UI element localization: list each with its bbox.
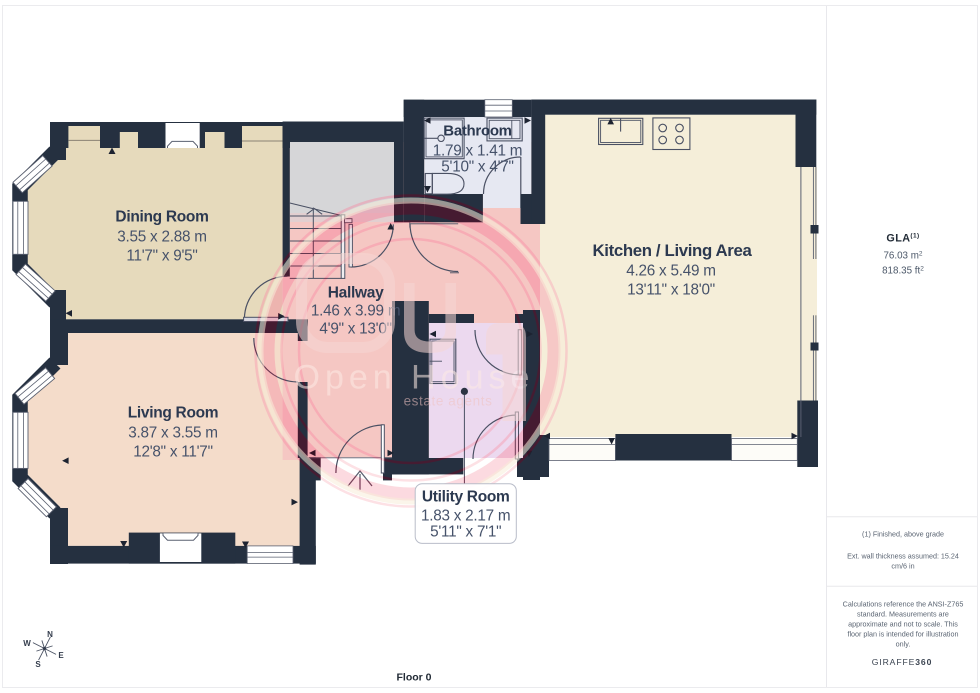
svg-text:Bathroom: Bathroom — [443, 123, 511, 140]
svg-text:11'7" x 9'5": 11'7" x 9'5" — [126, 248, 197, 265]
svg-text:cm/6 in: cm/6 in — [891, 562, 914, 571]
svg-text:818.35 ft2: 818.35 ft2 — [882, 266, 924, 277]
svg-text:GIRAFFE360: GIRAFFE360 — [872, 657, 933, 667]
svg-text:(1) Finished, above grade: (1) Finished, above grade — [862, 530, 944, 539]
svg-text:floor plan is intended for ill: floor plan is intended for illustration — [847, 630, 958, 639]
svg-text:approximate and not to scale.: approximate and not to scale. This — [848, 620, 958, 629]
svg-text:76.03 m2: 76.03 m2 — [883, 251, 922, 262]
svg-text:Utility Room: Utility Room — [422, 489, 510, 506]
svg-text:12'8" x 11'7": 12'8" x 11'7" — [133, 444, 213, 461]
svg-text:Ext. wall thickness assumed: 1: Ext. wall thickness assumed: 15.24 — [847, 552, 959, 561]
svg-text:Open House: Open House — [294, 359, 535, 397]
svg-text:only.: only. — [896, 640, 911, 649]
svg-text:3.87 x 3.55 m: 3.87 x 3.55 m — [128, 425, 217, 442]
svg-text:4.26 x 5.49 m: 4.26 x 5.49 m — [626, 263, 715, 280]
svg-text:Kitchen / Living Area: Kitchen / Living Area — [593, 241, 753, 260]
svg-text:5'11" x 7'1": 5'11" x 7'1" — [430, 524, 501, 541]
svg-text:N: N — [47, 630, 53, 639]
svg-text:Living Room: Living Room — [128, 405, 219, 422]
svg-text:3.55 x 2.88 m: 3.55 x 2.88 m — [117, 229, 206, 246]
svg-text:Dining Room: Dining Room — [115, 209, 208, 226]
svg-text:1.83 x 2.17 m: 1.83 x 2.17 m — [421, 508, 510, 525]
svg-text:S: S — [35, 660, 41, 669]
svg-text:Floor 0: Floor 0 — [396, 672, 431, 684]
svg-text:13'11" x 18'0": 13'11" x 18'0" — [627, 282, 715, 299]
svg-text:Hallway: Hallway — [328, 285, 384, 302]
svg-text:estate agents: estate agents — [404, 394, 493, 409]
svg-text:E: E — [58, 651, 64, 660]
svg-text:W: W — [23, 639, 31, 648]
svg-text:5'10" x 4'7": 5'10" x 4'7" — [441, 159, 513, 176]
svg-text:standard. Measurements are: standard. Measurements are — [857, 610, 949, 619]
svg-text:1.79 x 1.41 m: 1.79 x 1.41 m — [433, 143, 522, 160]
svg-text:Calculations reference the ANS: Calculations reference the ANSI-Z765 — [843, 600, 964, 609]
